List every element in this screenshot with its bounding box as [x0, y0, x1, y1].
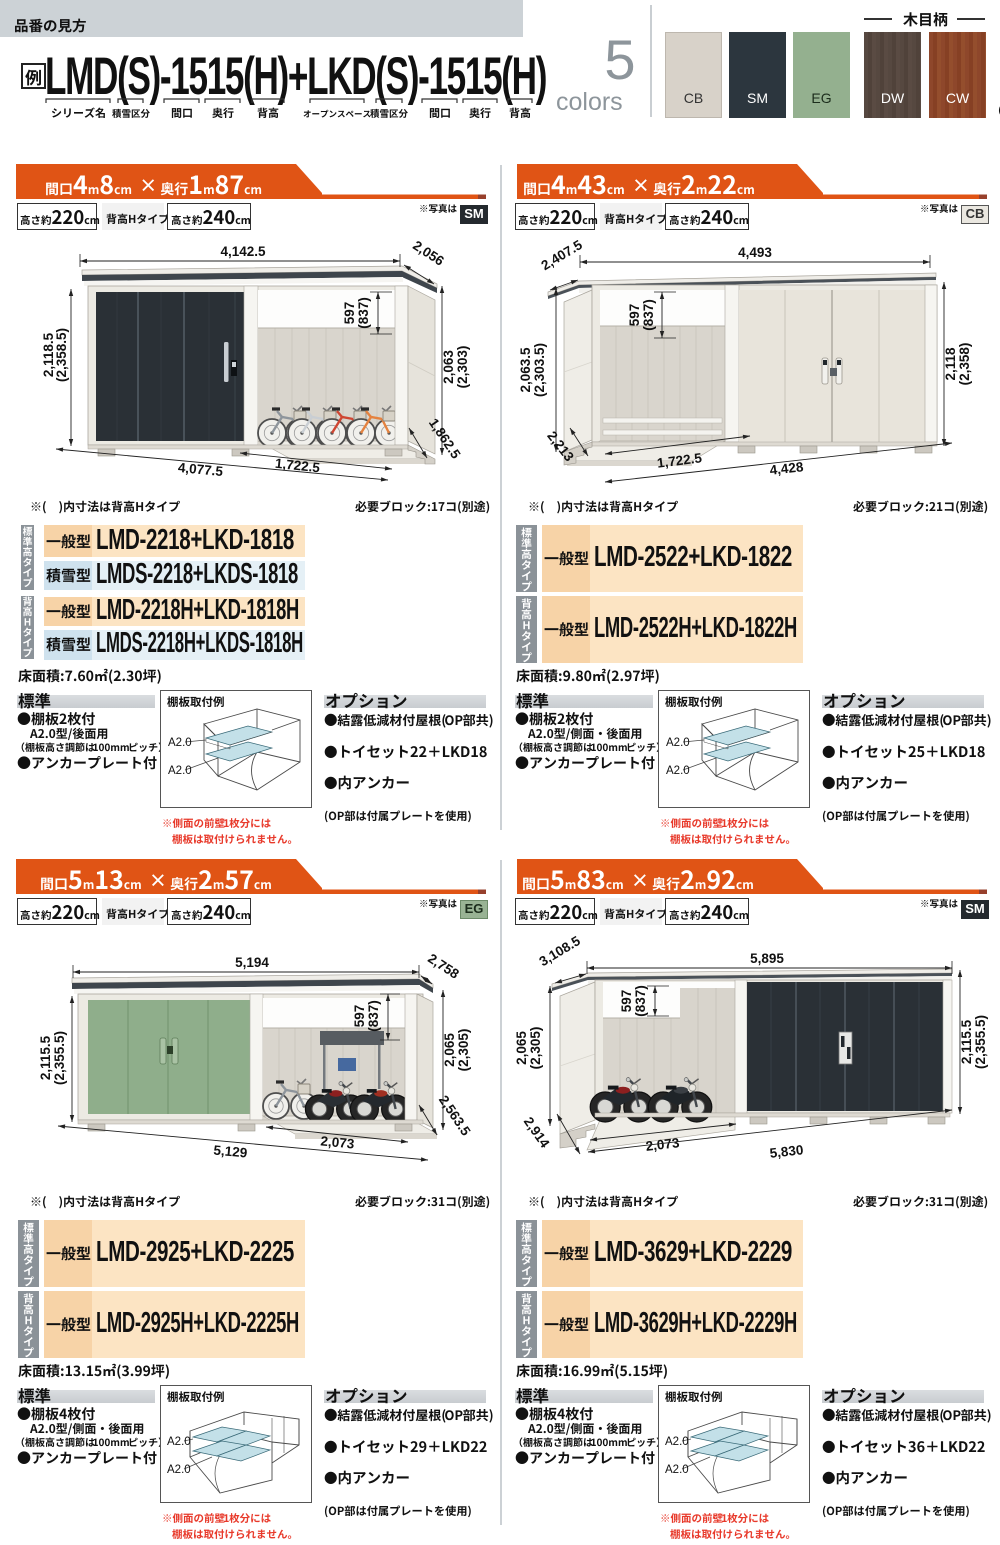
svg-text:3,108.5: 3,108.5	[537, 933, 584, 969]
svg-text:2,065: 2,065	[514, 1031, 529, 1065]
svg-text:2,065: 2,065	[442, 1033, 457, 1067]
svg-text:(2,303.5): (2,303.5)	[532, 343, 547, 397]
svg-text:4,493: 4,493	[738, 245, 772, 260]
svg-text:597: 597	[619, 990, 634, 1013]
svg-text:2,758: 2,758	[425, 951, 462, 982]
svg-text:(2,355.5): (2,355.5)	[973, 1015, 988, 1069]
svg-text:2,407.5: 2,407.5	[539, 240, 586, 273]
svg-text:A2.0: A2.0	[167, 1436, 191, 1448]
svg-text:597: 597	[342, 302, 357, 325]
svg-text:2,063.5: 2,063.5	[518, 347, 533, 393]
svg-text:2,914: 2,914	[521, 1114, 553, 1151]
svg-text:A2.0: A2.0	[168, 765, 192, 777]
svg-text:(837): (837)	[366, 1000, 381, 1032]
svg-text:5,194: 5,194	[235, 955, 269, 970]
svg-text:(2,358.5): (2,358.5)	[54, 328, 69, 382]
svg-text:(2,305): (2,305)	[456, 1029, 471, 1072]
svg-text:597: 597	[352, 1005, 367, 1028]
svg-text:(837): (837)	[641, 299, 656, 331]
svg-text:2,056: 2,056	[410, 240, 447, 269]
svg-text:2,073: 2,073	[320, 1133, 356, 1151]
svg-text:4,142.5: 4,142.5	[220, 244, 266, 259]
svg-text:(837): (837)	[356, 297, 371, 329]
svg-text:A2.0: A2.0	[167, 1464, 191, 1476]
svg-text:5,129: 5,129	[213, 1143, 248, 1161]
svg-text:A2.0: A2.0	[665, 1436, 689, 1448]
svg-text:(2,305): (2,305)	[528, 1027, 543, 1070]
svg-text:2,115.5: 2,115.5	[959, 1019, 974, 1064]
svg-text:(837): (837)	[633, 985, 648, 1017]
svg-text:5,895: 5,895	[750, 951, 784, 966]
svg-text:4,077.5: 4,077.5	[177, 460, 224, 479]
svg-text:A2.0: A2.0	[666, 737, 690, 749]
svg-text:4,428: 4,428	[769, 459, 805, 478]
svg-text:597: 597	[627, 304, 642, 327]
svg-text:(2,303): (2,303)	[455, 346, 470, 389]
svg-text:2,563.5: 2,563.5	[436, 1093, 474, 1139]
svg-text:5,830: 5,830	[769, 1142, 804, 1161]
svg-text:A2.0: A2.0	[666, 765, 690, 777]
svg-text:(2,358): (2,358)	[957, 343, 972, 386]
svg-text:A2.0: A2.0	[665, 1464, 689, 1476]
svg-text:(2,355.5): (2,355.5)	[52, 1031, 67, 1085]
svg-text:2,115.5: 2,115.5	[38, 1035, 53, 1080]
svg-text:2,118: 2,118	[943, 347, 958, 381]
svg-text:A2.0: A2.0	[168, 737, 192, 749]
svg-text:2,063: 2,063	[441, 350, 456, 384]
